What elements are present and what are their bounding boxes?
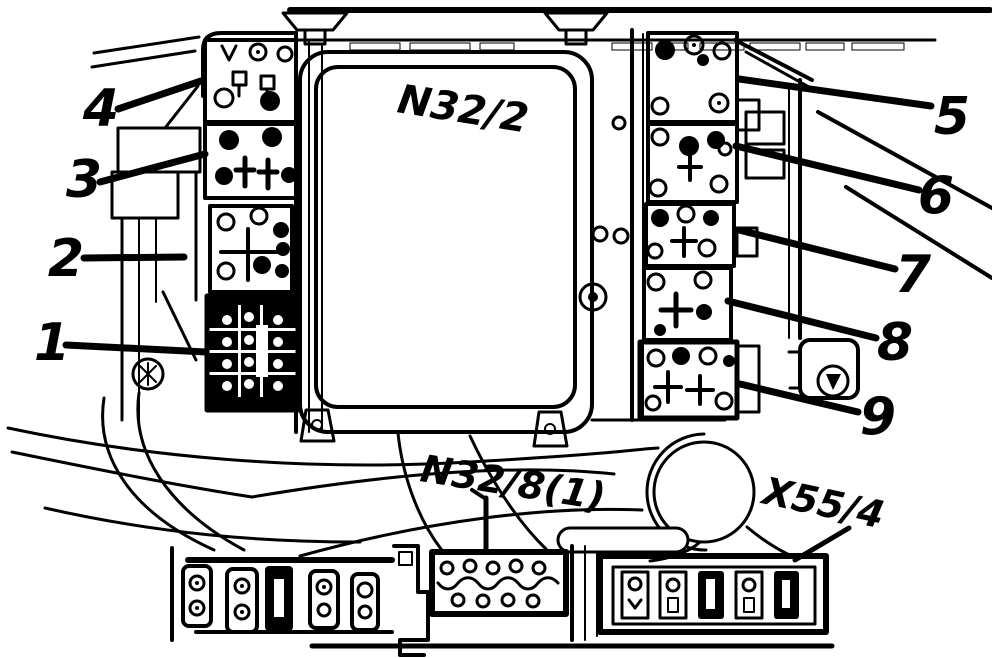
connector-block-2 (210, 206, 292, 292)
leader-line-1 (66, 345, 206, 352)
callout-7: 7 (895, 245, 932, 305)
fuse-connector (265, 566, 293, 631)
connector-block-3 (205, 124, 297, 198)
screw-icon (133, 359, 163, 389)
connector-block-8 (644, 268, 731, 340)
module-foot (534, 412, 567, 446)
callout-4: 4 (82, 79, 119, 139)
component-locator-diagram: 1 2 3 4 5 6 7 8 9 N32/2 N32/8(1) X55/4 (0, 0, 992, 658)
leader-line-5 (739, 79, 931, 106)
diagram-canvas: 1 2 3 4 5 6 7 8 9 N32/2 N32/8(1) X55/4 (0, 0, 992, 658)
bottom-connector-n32-8 (432, 552, 566, 614)
connector-block-9 (640, 342, 737, 418)
connector-block-5 (648, 33, 737, 122)
fuse-connector (227, 569, 257, 632)
bottom-connector-strip (172, 546, 832, 655)
connector-block-6 (648, 124, 737, 202)
leader-line-3 (100, 154, 205, 182)
callout-5: 5 (934, 87, 970, 147)
module-foot (301, 410, 334, 441)
leader-line-7 (739, 230, 895, 269)
callout-8: 8 (877, 313, 913, 373)
mounting-tab-right (545, 13, 607, 30)
callout-9: 9 (860, 387, 896, 447)
fuse-connector (310, 571, 338, 628)
callout-2: 2 (48, 229, 84, 289)
left-connector-column (203, 33, 322, 432)
right-connector-column (632, 30, 759, 420)
vent-slots (350, 43, 904, 50)
fuse-connector (352, 574, 378, 630)
connector-block-1 (207, 296, 298, 410)
right-mounting-bracket (789, 340, 858, 398)
callout-1: 1 (34, 313, 70, 373)
connector-block-4 (205, 40, 296, 122)
leader-line-2 (84, 257, 184, 258)
terminal-strip-label: X55/4 (757, 468, 888, 537)
component-labels: N32/2 N32/8(1) X55/4 (394, 76, 888, 537)
mounting-tab-left (283, 13, 347, 30)
connector-block-7 (646, 204, 734, 266)
callout-3: 3 (66, 150, 102, 210)
fuse-connector (183, 566, 211, 626)
module-label: N32/2 (394, 76, 531, 142)
terminal-strip-x55-4 (600, 556, 826, 632)
harness-sleeve (558, 528, 688, 552)
callout-6: 6 (918, 166, 954, 226)
leader-line-4 (118, 81, 201, 109)
